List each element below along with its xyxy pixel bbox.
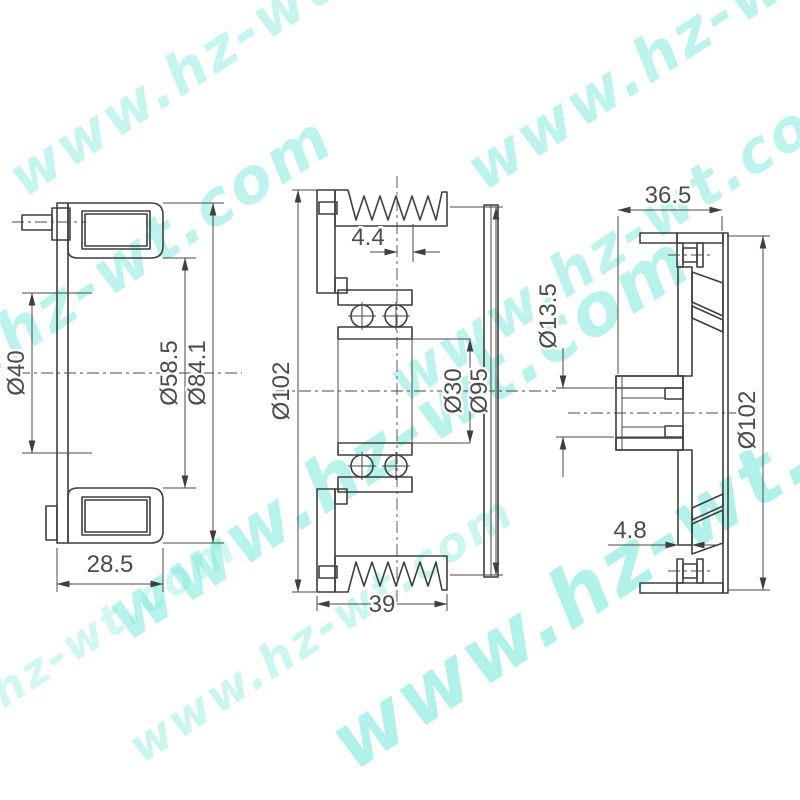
dim-label-hub-bore-dia: Ø13.5 — [535, 283, 562, 348]
dim-label-groove-offset: 4.4 — [351, 224, 384, 251]
dim-label-coil-outer-dia: Ø84.1 — [184, 340, 211, 405]
dim-label-pulley-outer-dia: Ø102 — [268, 362, 295, 421]
bearing-outer-race-top — [338, 290, 412, 305]
coil-winding-frame-bottom — [82, 497, 150, 535]
dim-label-plate-thickness: 4.8 — [613, 517, 646, 544]
coil-winding-bottom — [85, 500, 147, 532]
drawing-canvas: www.hz-wt.com www.hz-wt.com www.hz-wt.co… — [0, 0, 800, 800]
bearing-inner-race-top — [338, 327, 412, 339]
mounting-tab — [46, 506, 57, 540]
lead-wire — [22, 215, 52, 230]
dim-label-pulley-bore-dia: Ø30 — [440, 368, 467, 413]
hub-boss-wall-bottom — [616, 438, 683, 450]
dim-label-coil-mid-dia: Ø58.5 — [156, 340, 183, 405]
dim-label-pulley-flange-dia: Ø95 — [466, 368, 493, 413]
dim-label-coil-width: 28.5 — [87, 551, 134, 578]
dim-label-hub-width: 36.5 — [645, 182, 692, 209]
hub-boss — [616, 376, 683, 450]
hub-boss-wall-top — [616, 376, 683, 388]
damper-retainer-top — [692, 306, 723, 332]
hub-spline-bottom — [665, 426, 683, 437]
drive-plate-bottom-section — [677, 583, 723, 593]
belt-groove-rim-top — [335, 190, 447, 226]
dim-label-hub-outer-dia: Ø102 — [734, 391, 761, 450]
hub-spline-top — [665, 388, 683, 399]
dim-label-coil-inner-dia: Ø40 — [3, 350, 30, 395]
dim-label-pulley-width: 39 — [369, 591, 396, 618]
